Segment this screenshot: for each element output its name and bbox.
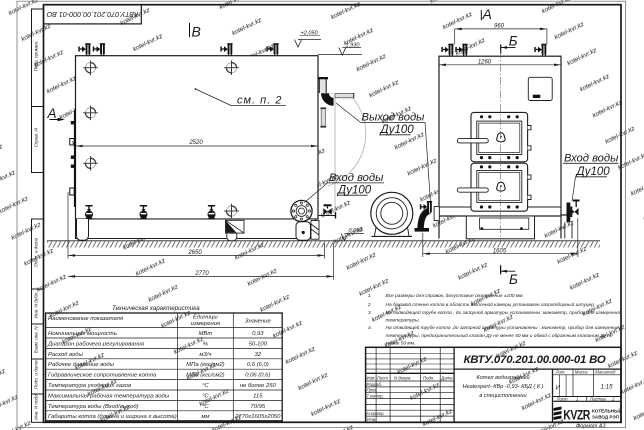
svg-text:КВТУ.070.201.00.000-01 ВО: КВТУ.070.201.00.000-01 ВО xyxy=(46,10,138,19)
svg-text:Взам. инв. N: Взам. инв. N xyxy=(34,326,39,353)
svg-text:измерения: измерения xyxy=(191,321,221,327)
svg-text:Расход воды: Расход воды xyxy=(48,352,84,358)
svg-text:Подп. и дата: Подп. и дата xyxy=(34,360,39,389)
svg-text:в специсполнении: в специсполнении xyxy=(479,393,526,399)
svg-text:2770х1605х2050: 2770х1605х2050 xyxy=(234,414,281,420)
svg-text:3: 3 xyxy=(368,310,371,316)
svg-text:Значение: Значение xyxy=(245,318,272,324)
svg-text:Подп.: Подп. xyxy=(423,375,434,380)
svg-text:%: % xyxy=(203,341,208,347)
svg-text:Котел водогрейный: Котел водогрейный xyxy=(476,374,529,381)
svg-text:2650: 2650 xyxy=(187,250,202,256)
svg-text:Лит.: Лит. xyxy=(555,370,566,375)
svg-text:Листов: Листов xyxy=(589,397,606,402)
svg-text:Лист: Лист xyxy=(376,375,388,380)
svg-text:не более 250: не более 250 xyxy=(240,383,277,389)
svg-text:МПа (кгс/см2): МПа (кгс/см2) xyxy=(186,373,225,379)
svg-text:Ду100: Ду100 xyxy=(575,166,611,178)
svg-text:Изм.: Изм. xyxy=(367,375,376,380)
svg-text:°С: °С xyxy=(202,383,209,389)
svg-text:Справ. N: Справ. N xyxy=(34,128,39,148)
svg-text:А: А xyxy=(47,106,57,121)
svg-text:1.930: 1.930 xyxy=(346,42,361,48)
svg-text:Ду100: Ду100 xyxy=(379,124,415,136)
svg-text:960: 960 xyxy=(494,24,505,30)
svg-text:КВТУ.070.201.00.000-01 ВО: КВТУ.070.201.00.000-01 ВО xyxy=(463,354,605,366)
svg-text:1605: 1605 xyxy=(493,249,507,255)
svg-text:На отводящей трубе котла ,до з: На отводящей трубе котла ,до запорной ар… xyxy=(386,324,620,331)
svg-text:Перв. примен.: Перв. примен. xyxy=(34,41,39,72)
svg-text:Единицы: Единицы xyxy=(193,314,218,320)
svg-text:Габариты котла (длинна и ширин: Габариты котла (длинна и ширина х высота… xyxy=(48,414,177,420)
svg-text:А: А xyxy=(482,6,492,22)
svg-text:Б: Б xyxy=(509,33,518,48)
svg-text:Температура воды (Вход/выход): Температура воды (Вход/выход) xyxy=(48,404,139,410)
svg-text:мм: мм xyxy=(201,414,209,420)
svg-text:1: 1 xyxy=(368,293,371,299)
svg-text:Выход воды: Выход воды xyxy=(362,111,426,123)
svg-text:Все размеры для справок, допус: Все размеры для справок, допустимое откл… xyxy=(386,293,524,299)
svg-text:Лист: Лист xyxy=(556,397,568,402)
svg-text:см. п. 2: см. п. 2 xyxy=(237,94,282,106)
svg-text:50-100: 50-100 xyxy=(249,341,268,347)
svg-text:Температура уходящих газов: Температура уходящих газов xyxy=(48,383,131,389)
svg-text:1260: 1260 xyxy=(478,60,492,66)
svg-text:KVZR: KVZR xyxy=(563,407,590,423)
svg-text:Разраб.: Разраб. xyxy=(367,382,383,387)
svg-text:2: 2 xyxy=(367,302,371,308)
svg-text:4.: 4. xyxy=(368,325,372,331)
svg-text:Масштаб: Масштаб xyxy=(595,370,616,375)
svg-text:Вход воды: Вход воды xyxy=(329,172,384,184)
svg-text:Рабочее давление воды: Рабочее давление воды xyxy=(48,362,115,368)
svg-text:115: 115 xyxy=(253,393,263,399)
svg-text:32: 32 xyxy=(255,352,262,358)
svg-text:температуры.: температуры. xyxy=(386,319,420,324)
svg-text:Утв.: Утв. xyxy=(367,417,377,422)
svg-text:На боковой стенке котла в обла: На боковой стенке котла в области топочн… xyxy=(386,301,595,308)
svg-text:2520: 2520 xyxy=(188,140,203,146)
svg-text:0,06 (0,6): 0,06 (0,6) xyxy=(245,373,270,379)
svg-text:°С: °С xyxy=(202,393,209,399)
svg-text:Диапазон рабочего регулировани: Диапазон рабочего регулирования xyxy=(47,341,145,347)
svg-text:Пров.: Пров. xyxy=(367,388,378,393)
svg-text:Номинальная мощность: Номинальная мощность xyxy=(48,331,117,337)
svg-text:0,6 (6,0): 0,6 (6,0) xyxy=(247,362,269,368)
svg-text:Б: Б xyxy=(509,272,518,287)
svg-text:2770: 2770 xyxy=(194,271,209,277)
svg-text:Heatexpert- КВр -0,93- КБД ( К: Heatexpert- КВр -0,93- КБД ( К ) xyxy=(462,384,543,390)
svg-text:Н.контр.: Н.контр. xyxy=(367,411,385,416)
svg-text:менее 50 мм.: менее 50 мм. xyxy=(386,340,416,346)
svg-text:И: И xyxy=(556,385,561,392)
svg-text:МВт: МВт xyxy=(199,331,213,337)
svg-text:Т.контр.: Т.контр. xyxy=(367,394,384,399)
svg-text:м3/ч: м3/ч xyxy=(199,352,211,358)
svg-text:0.000: 0.000 xyxy=(349,228,364,234)
svg-text:°С: °С xyxy=(202,404,209,410)
svg-text:Подп. и дата: Подп. и дата xyxy=(34,237,39,266)
svg-text:Ду100: Ду100 xyxy=(336,184,372,196)
svg-text:КОТЕЛЬНЫЙ: КОТЕЛЬНЫЙ xyxy=(592,407,622,414)
svg-text:Гидравлическое сопротивление к: Гидравлическое сопротивление котла xyxy=(48,373,157,379)
svg-text:Дата: Дата xyxy=(440,375,453,380)
svg-text:температуры, предохранительный: температуры, предохранительный клапан Ду… xyxy=(386,332,614,339)
svg-text:МПа (кгс/см2): МПа (кгс/см2) xyxy=(186,362,225,368)
svg-text:Вход воды: Вход воды xyxy=(564,152,619,164)
svg-text:1:15: 1:15 xyxy=(600,384,613,391)
svg-text:Максимальная рабочая температу: Максимальная рабочая температура воды xyxy=(48,393,170,399)
svg-text:Формат А3: Формат А3 xyxy=(576,424,606,430)
svg-text:0,93: 0,93 xyxy=(252,331,264,337)
svg-text:Наименование показателя: Наименование показателя xyxy=(48,316,124,322)
svg-text:Масса: Масса xyxy=(575,370,588,375)
svg-text:На подводящей трубе котла ,: На подводящей трубе котла , до запорной … xyxy=(386,309,621,316)
svg-text:70/95: 70/95 xyxy=(250,404,265,410)
svg-text:Техническая характеристика: Техническая характеристика xyxy=(112,305,200,312)
svg-text:Инв. N дубл.: Инв. N дубл. xyxy=(34,292,39,319)
svg-text:Инв. N подл.: Инв. N подл. xyxy=(34,393,39,420)
svg-text:В: В xyxy=(192,24,201,40)
svg-text:ЗАВОД РЭП: ЗАВОД РЭП xyxy=(592,414,619,419)
svg-text:N докум.: N докум. xyxy=(394,375,411,380)
